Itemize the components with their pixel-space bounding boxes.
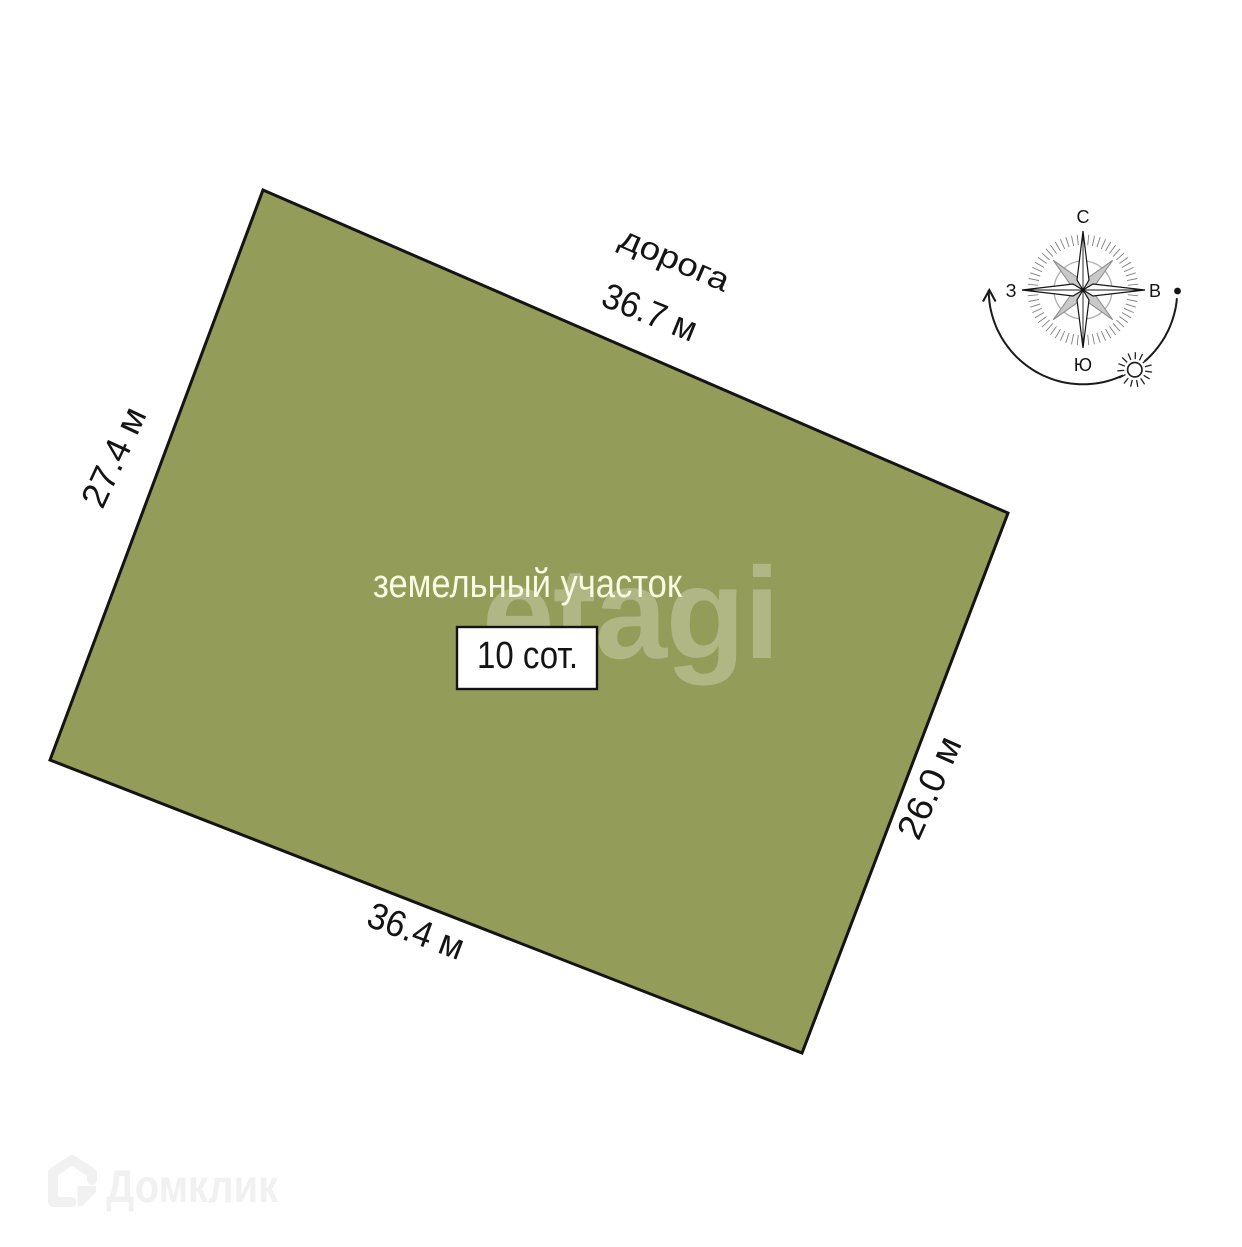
svg-text:В: В xyxy=(1149,281,1161,301)
svg-text:земельный участок: земельный участок xyxy=(373,562,682,606)
svg-text:Домклик: Домклик xyxy=(106,1160,279,1212)
svg-text:10 сот.: 10 сот. xyxy=(477,635,578,677)
svg-text:Ю: Ю xyxy=(1074,355,1092,375)
svg-text:С: С xyxy=(1077,207,1090,227)
svg-text:З: З xyxy=(1006,281,1017,301)
